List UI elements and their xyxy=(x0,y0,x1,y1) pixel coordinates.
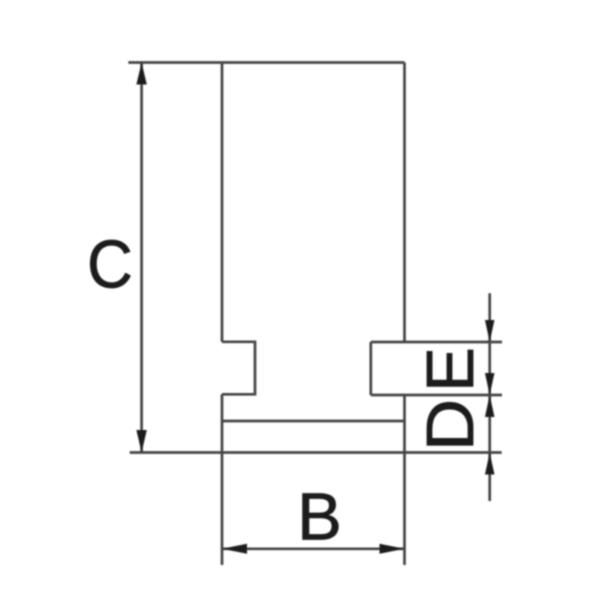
svg-text:B: B xyxy=(297,480,342,555)
svg-text:E: E xyxy=(413,347,488,392)
svg-text:D: D xyxy=(413,399,488,451)
svg-text:C: C xyxy=(87,226,133,302)
